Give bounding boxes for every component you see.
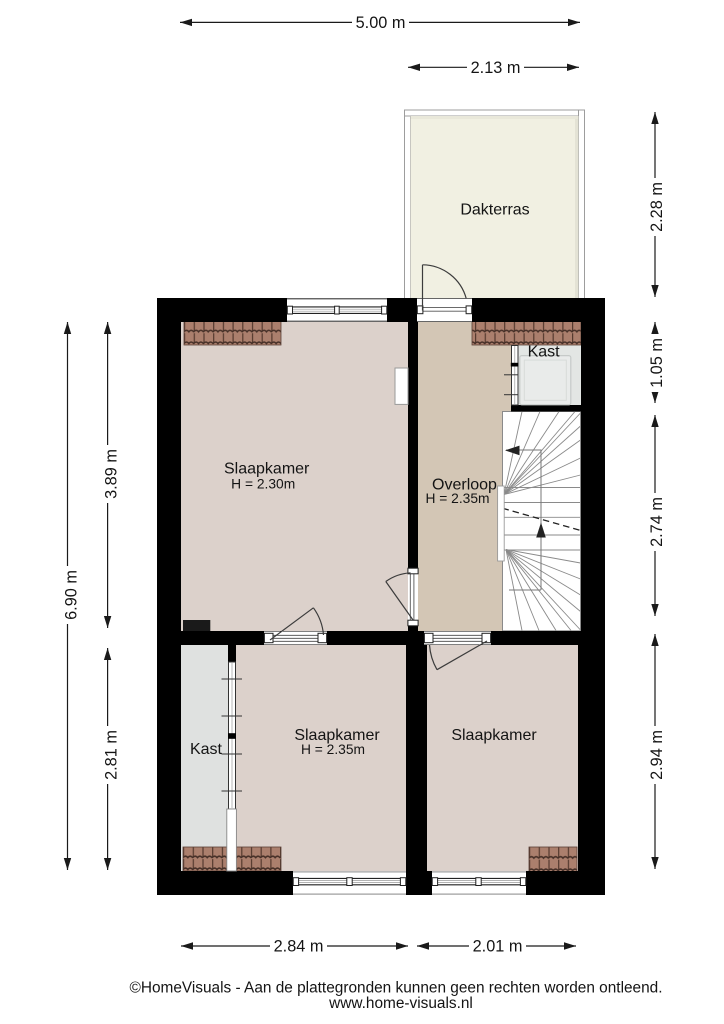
svg-text:2.28 m: 2.28 m	[648, 182, 666, 232]
svg-text:Kast: Kast	[190, 741, 223, 758]
svg-text:1.05 m: 1.05 m	[648, 338, 666, 388]
svg-text:2.84 m: 2.84 m	[274, 938, 324, 956]
svg-text:2.13 m: 2.13 m	[471, 59, 521, 77]
svg-text:2.94 m: 2.94 m	[648, 730, 666, 780]
svg-text:Kast: Kast	[528, 344, 561, 361]
svg-text:H = 2.35m: H = 2.35m	[301, 742, 365, 757]
svg-text:3.89 m: 3.89 m	[103, 449, 121, 499]
svg-text:2.74 m: 2.74 m	[648, 497, 666, 547]
svg-text:Slaapkamer: Slaapkamer	[224, 460, 310, 477]
svg-text:2.81 m: 2.81 m	[103, 730, 121, 780]
svg-text:H = 2.35m: H = 2.35m	[425, 491, 489, 506]
svg-text:Slaapkamer: Slaapkamer	[451, 727, 537, 744]
svg-text:2.01 m: 2.01 m	[473, 938, 523, 956]
svg-text:5.00 m: 5.00 m	[356, 14, 406, 32]
svg-text:©HomeVisuals - Aan de plattegr: ©HomeVisuals - Aan de plattegronden kunn…	[130, 980, 663, 997]
svg-text:H = 2.30m: H = 2.30m	[231, 477, 295, 492]
svg-text:Dakterras: Dakterras	[460, 201, 529, 218]
svg-text:www.home-visuals.nl: www.home-visuals.nl	[328, 995, 473, 1012]
svg-text:6.90 m: 6.90 m	[63, 570, 81, 620]
